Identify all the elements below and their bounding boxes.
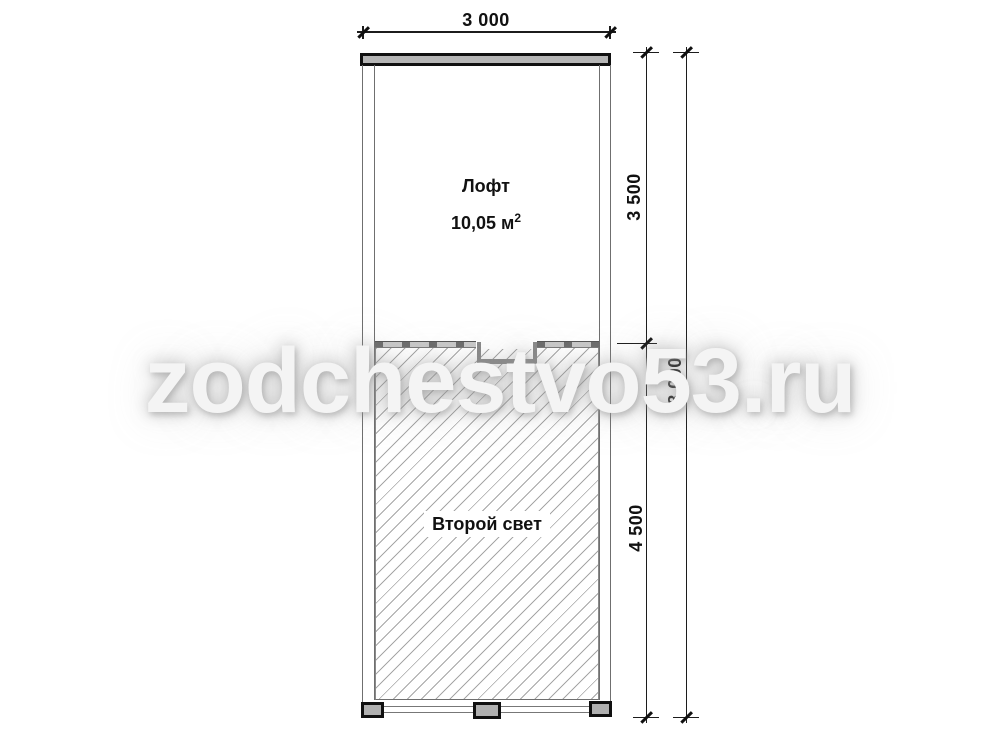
room-name-second-light-label: Второй свет [424,511,550,537]
footing-post-right [589,701,612,717]
top-wall-beam [360,53,611,66]
dimension-line-top [357,31,616,33]
room-name-loft: Лофт [386,176,586,197]
ladder-opening-gap [476,340,537,349]
room-area-loft: 10,05 м2 [386,211,586,234]
room-name-second-light: Второй свет [375,514,599,535]
dimension-line-right-outer [686,47,688,723]
room-area-value: 10,05 м [451,213,514,233]
dimension-label-width: 3 000 [386,10,586,31]
dimension-label-upper-height: 3 500 [624,147,644,247]
left-wall-outer-line [362,65,363,703]
room-area-superscript: 2 [514,211,521,225]
right-wall-outer-line [610,65,611,703]
dimension-label-lower-height: 4 500 [626,478,646,578]
dimension-crossbar-inner-middle [617,343,657,345]
ladder-opening-bottom-rail [477,359,537,364]
footing-post-center [473,702,501,719]
floor-plan-canvas: 3 000 3 500 8 000 4 500 Лофт 10,05 м2 Вт… [0,0,1000,750]
dimension-label-total-height: 8 000 [665,331,685,431]
dimension-line-right-inner [646,47,648,723]
footing-post-left [361,702,384,718]
